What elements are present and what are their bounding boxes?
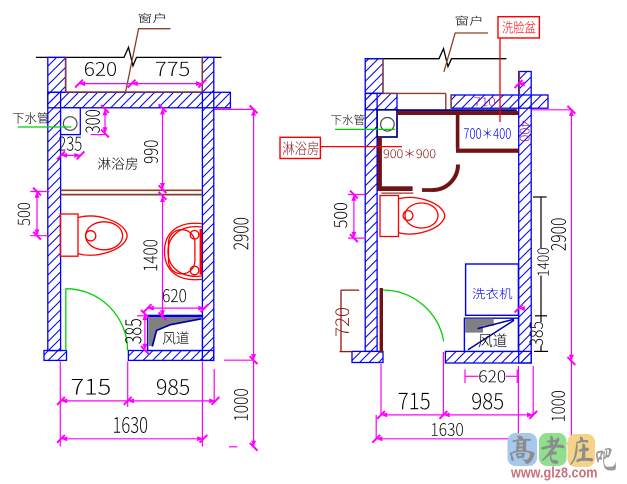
svg-text:www.glz8.com: www.glz8.com bbox=[510, 466, 597, 482]
